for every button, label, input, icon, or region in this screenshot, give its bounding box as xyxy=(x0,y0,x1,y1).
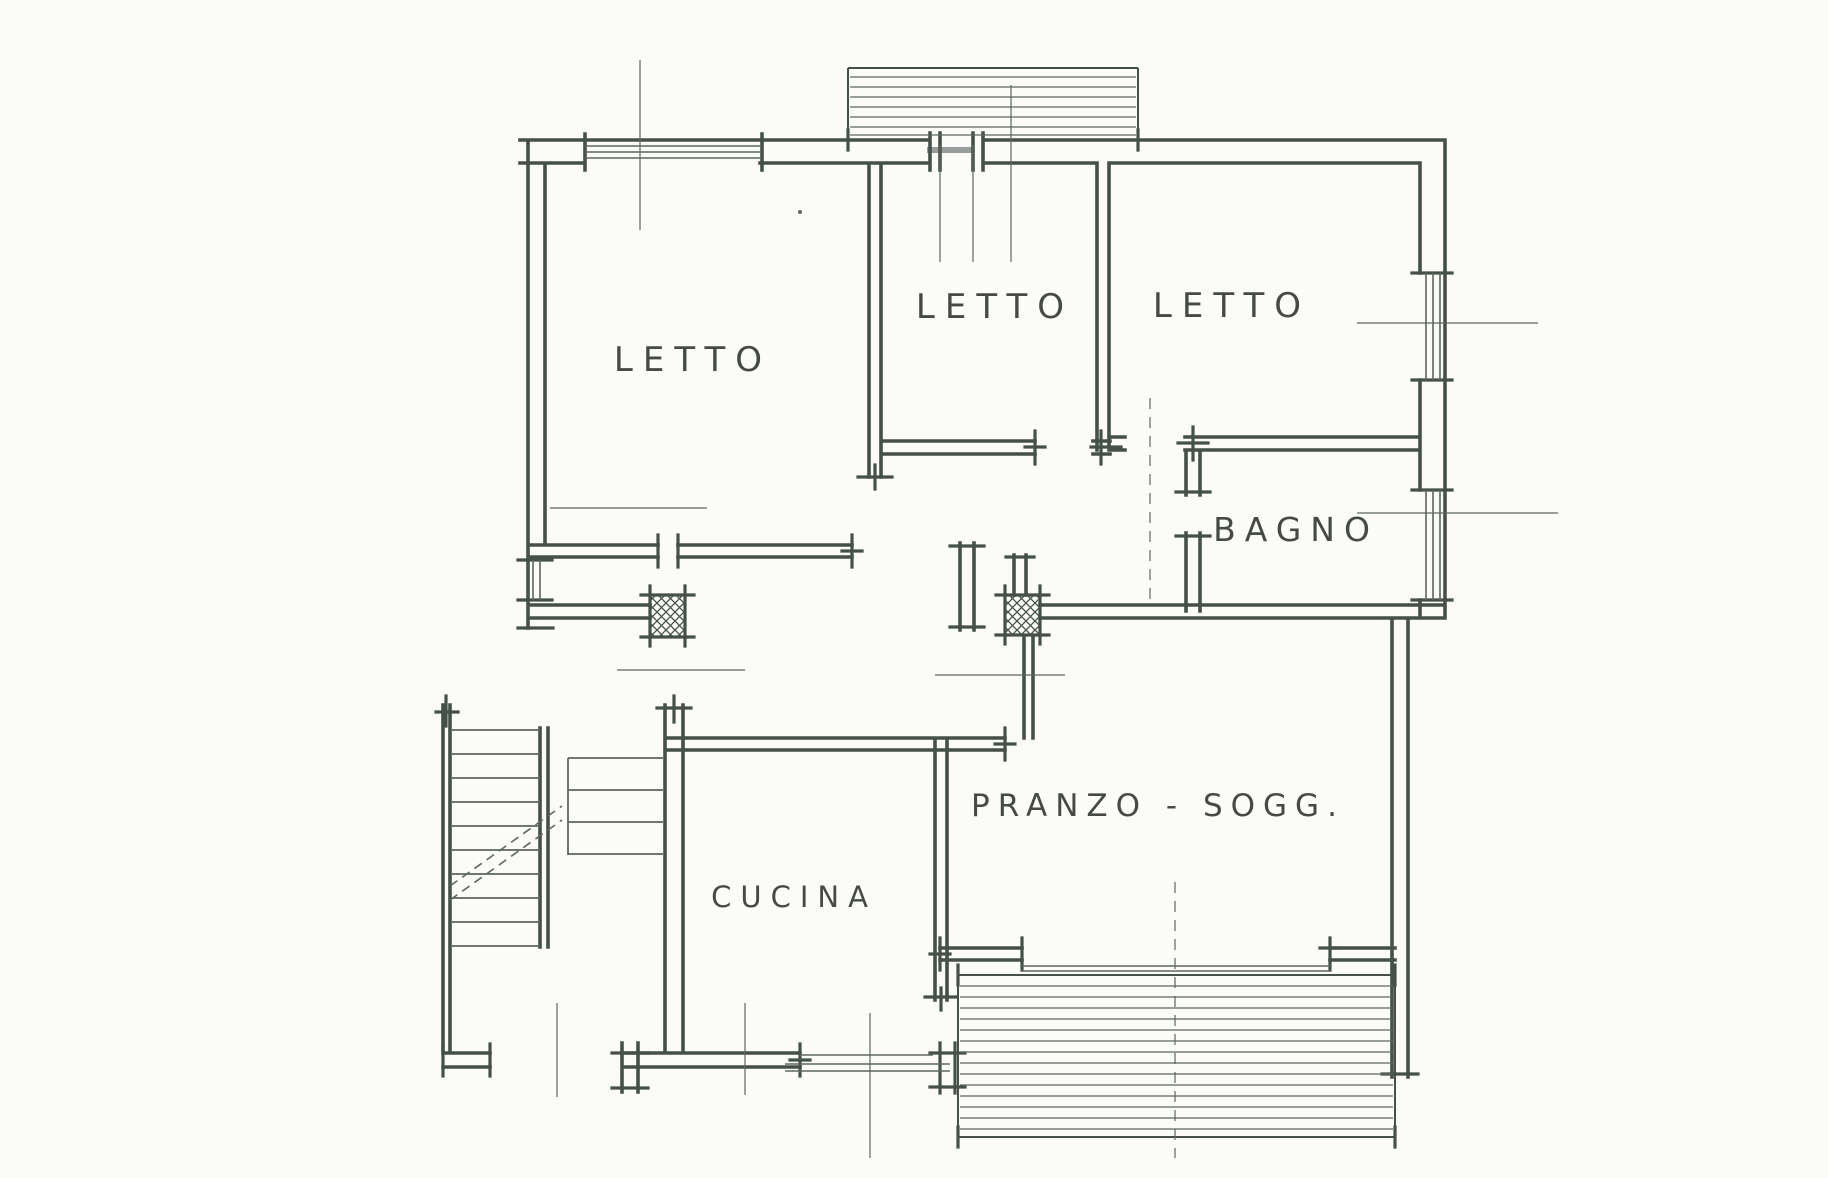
staircase-direction-line xyxy=(450,806,562,900)
entry-pillar-right xyxy=(1005,595,1040,635)
balcony-bottom-hatch xyxy=(960,986,1393,1129)
entry-pillar-left xyxy=(650,595,685,637)
room-label-letto-left: LETTO xyxy=(614,340,772,380)
entry-pillar-ticks xyxy=(641,586,1049,646)
floor-plan-drawing: LETTO LETTO LETTO BAGNO PRANZO - SOGG. C… xyxy=(0,0,1828,1178)
room-label-pranzo-soggiorno: PRANZO - SOGG. xyxy=(971,788,1345,824)
stray-ink-dot xyxy=(798,210,802,214)
entry-pillars xyxy=(641,586,1049,646)
balcony-top-hatch xyxy=(850,77,1136,135)
room-label-bagno: BAGNO xyxy=(1213,510,1379,549)
balcony-bottom-outline xyxy=(958,975,1395,1137)
room-label-letto-right: LETTO xyxy=(1153,286,1311,326)
staircase-treads-flight1 xyxy=(452,730,540,946)
walls xyxy=(443,133,1445,1092)
balcony-bottom xyxy=(958,965,1395,1147)
room-labels: LETTO LETTO LETTO BAGNO PRANZO - SOGG. C… xyxy=(614,286,1379,914)
room-label-cucina: CUCINA xyxy=(711,880,877,914)
staircase xyxy=(450,730,663,946)
room-label-letto-center: LETTO xyxy=(916,287,1074,327)
axis-dashed-lines xyxy=(1150,398,1175,1158)
balcony-top xyxy=(848,68,1138,150)
balcony-bottom-corner-ticks xyxy=(958,965,1395,1147)
staircase-treads-flight2 xyxy=(568,758,663,855)
floor-plan: LETTO LETTO LETTO BAGNO PRANZO - SOGG. C… xyxy=(0,0,1828,1178)
balcony-top-outline xyxy=(848,68,1138,140)
